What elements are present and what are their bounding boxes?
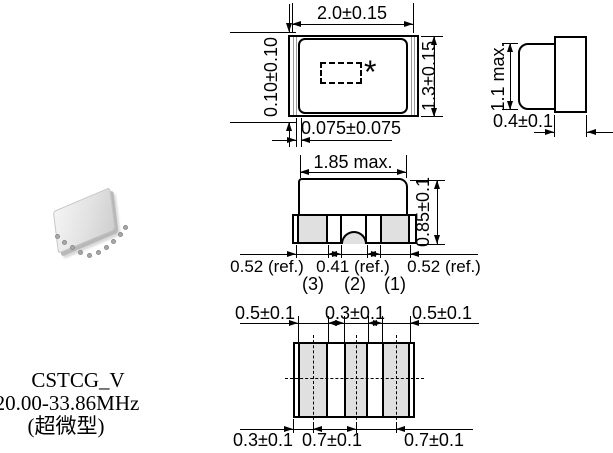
center-line <box>356 335 357 425</box>
arrowhead-left-icon <box>587 129 596 135</box>
dim-cap-offset-side-label: 0.10±0.10 <box>262 17 280 137</box>
dimension-line <box>292 24 413 25</box>
dimension-line <box>300 172 406 173</box>
dim-pad-right-label: 0.52 (ref.) <box>384 258 504 275</box>
end-view-cap-outline <box>518 43 556 110</box>
arrowhead-right-icon <box>287 137 296 143</box>
arrowhead-up-icon <box>434 180 440 189</box>
dim-cap-width-label: 1.85 max. <box>293 153 413 171</box>
terminal-bump <box>96 250 101 255</box>
center-line <box>396 335 397 425</box>
component-photo <box>45 190 130 262</box>
terminal-bump <box>111 239 116 244</box>
dimension-line <box>240 254 478 255</box>
terminal-bump <box>62 240 67 245</box>
package-note-label: (超微型) <box>0 415 146 437</box>
terminal-pad <box>380 216 410 242</box>
extension-line <box>413 3 414 33</box>
terminal-bump <box>118 232 123 237</box>
terminal-bump <box>123 225 128 230</box>
dim-strip-right-label: 0.5±0.1 <box>382 304 502 322</box>
arrowhead-down-icon <box>434 235 440 244</box>
terminal-bump <box>87 253 92 258</box>
dimension-line <box>240 323 479 324</box>
terminal-edge-line <box>411 37 412 115</box>
datasheet-dimension-drawing: 2.0±0.15 * 0.10±0.10 1.3±0.15 0.075±0.07… <box>0 0 613 453</box>
dimension-line <box>510 43 511 110</box>
center-line <box>313 335 314 425</box>
marking-area-dashed-rect <box>320 62 362 84</box>
dim-substrate-thickness-label: 0.4±0.1 <box>463 112 583 130</box>
dim-top-width-label: 2.0±0.15 <box>292 4 412 22</box>
terminal-bump <box>55 234 60 239</box>
center-line <box>285 378 424 379</box>
dim-pad-pitch-right-label: 0.7±0.1 <box>374 431 494 449</box>
dim-top-height-label: 1.3±0.15 <box>420 16 438 136</box>
arrowhead-down-icon <box>286 23 292 32</box>
frequency-range-label: 20.00-33.86MHz <box>0 392 147 414</box>
terminal-edge-line <box>414 37 415 115</box>
marking-asterisk: * <box>364 56 376 88</box>
front-view-cap-outline <box>298 178 408 216</box>
terminal-pad <box>297 216 328 242</box>
pin-label-1: (1) <box>335 275 455 293</box>
dimension-line <box>301 140 392 141</box>
terminal-bump <box>104 245 109 250</box>
end-view-substrate-outline <box>554 36 587 113</box>
terminal-edge-line <box>296 37 297 115</box>
terminal-bump <box>70 245 75 250</box>
terminal-bump <box>78 250 83 255</box>
dim-cap-offset-end-label: 0.075±0.075 <box>291 119 411 137</box>
terminal-edge-line <box>293 37 294 115</box>
part-series-label: CSTCG_V <box>18 369 138 391</box>
